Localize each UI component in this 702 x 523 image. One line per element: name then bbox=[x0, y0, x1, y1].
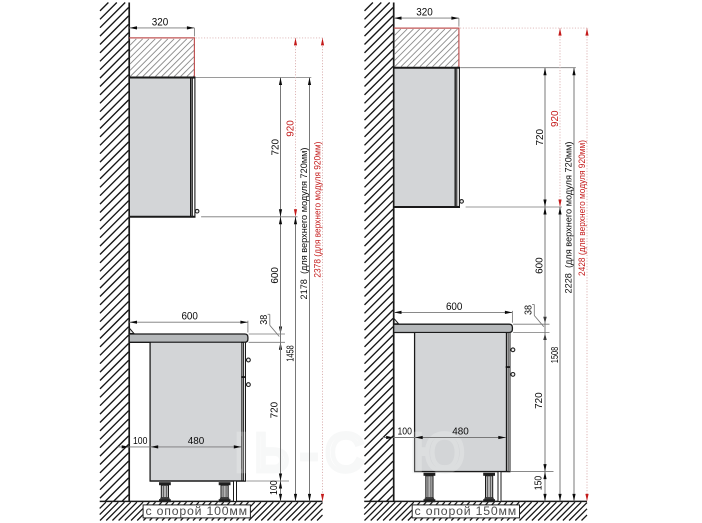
svg-text:720: 720 bbox=[534, 392, 545, 409]
svg-text:600: 600 bbox=[535, 257, 546, 274]
svg-text:920: 920 bbox=[550, 110, 561, 127]
svg-text:1458: 1458 bbox=[285, 345, 296, 362]
svg-text:720: 720 bbox=[269, 401, 280, 418]
svg-text:с опорой 100мм: с опорой 100мм bbox=[145, 504, 248, 518]
svg-text:320: 320 bbox=[152, 16, 169, 28]
svg-text:с опорой 150мм: с опорой 150мм bbox=[415, 504, 518, 518]
svg-text:600: 600 bbox=[446, 301, 463, 313]
svg-text:-: - bbox=[300, 423, 318, 483]
svg-text:720: 720 bbox=[535, 129, 546, 146]
svg-text:С: С bbox=[325, 423, 364, 483]
svg-text:Ь: Ь bbox=[254, 423, 289, 483]
svg-text:І: І bbox=[234, 423, 249, 483]
svg-text:2228 (для верхнего модуля 720: 2228 (для верхнего модуля 720мм) bbox=[563, 142, 574, 294]
svg-text:720: 720 bbox=[271, 139, 282, 156]
svg-text:38: 38 bbox=[259, 314, 270, 324]
svg-text:100: 100 bbox=[269, 480, 280, 495]
svg-text:1508: 1508 bbox=[550, 346, 561, 363]
svg-text:100: 100 bbox=[397, 426, 412, 438]
svg-text:150: 150 bbox=[534, 475, 545, 490]
svg-text:2178 (для верхнего модуля 720: 2178 (для верхнего модуля 720мм) bbox=[299, 148, 310, 300]
svg-text:600: 600 bbox=[270, 267, 281, 284]
svg-text:100: 100 bbox=[133, 435, 148, 447]
svg-text:320: 320 bbox=[416, 7, 433, 19]
svg-text:920: 920 bbox=[285, 120, 296, 137]
svg-text:600: 600 bbox=[181, 311, 198, 323]
svg-text:480: 480 bbox=[188, 435, 205, 447]
svg-text:480: 480 bbox=[452, 426, 469, 438]
svg-text:2428 (для верхнего модуля 920м: 2428 (для верхнего модуля 920мм) bbox=[577, 140, 588, 276]
svg-text:2378 (для верхнего модуля 920м: 2378 (для верхнего модуля 920мм) bbox=[313, 142, 324, 278]
svg-text:38: 38 bbox=[524, 305, 535, 315]
